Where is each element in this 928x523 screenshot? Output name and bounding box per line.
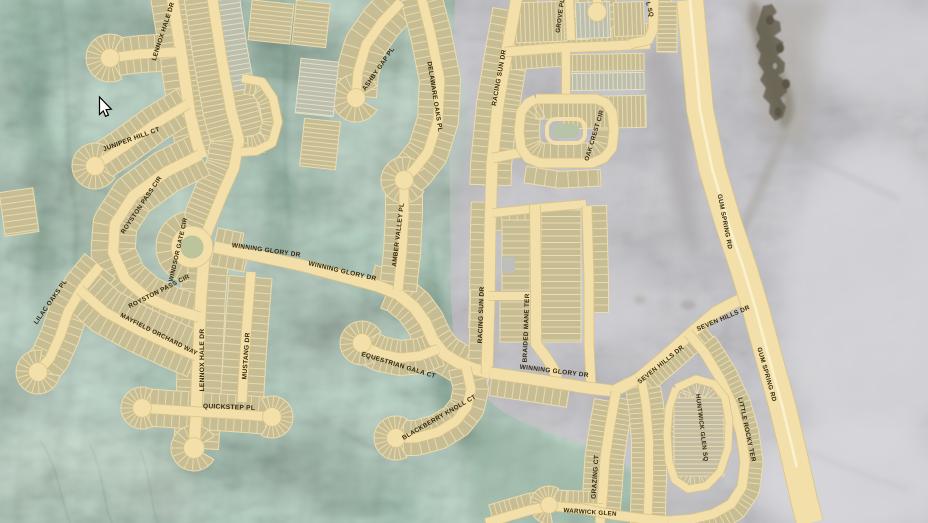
svg-text:LENNOX HALE DR: LENNOX HALE DR — [199, 329, 206, 392]
